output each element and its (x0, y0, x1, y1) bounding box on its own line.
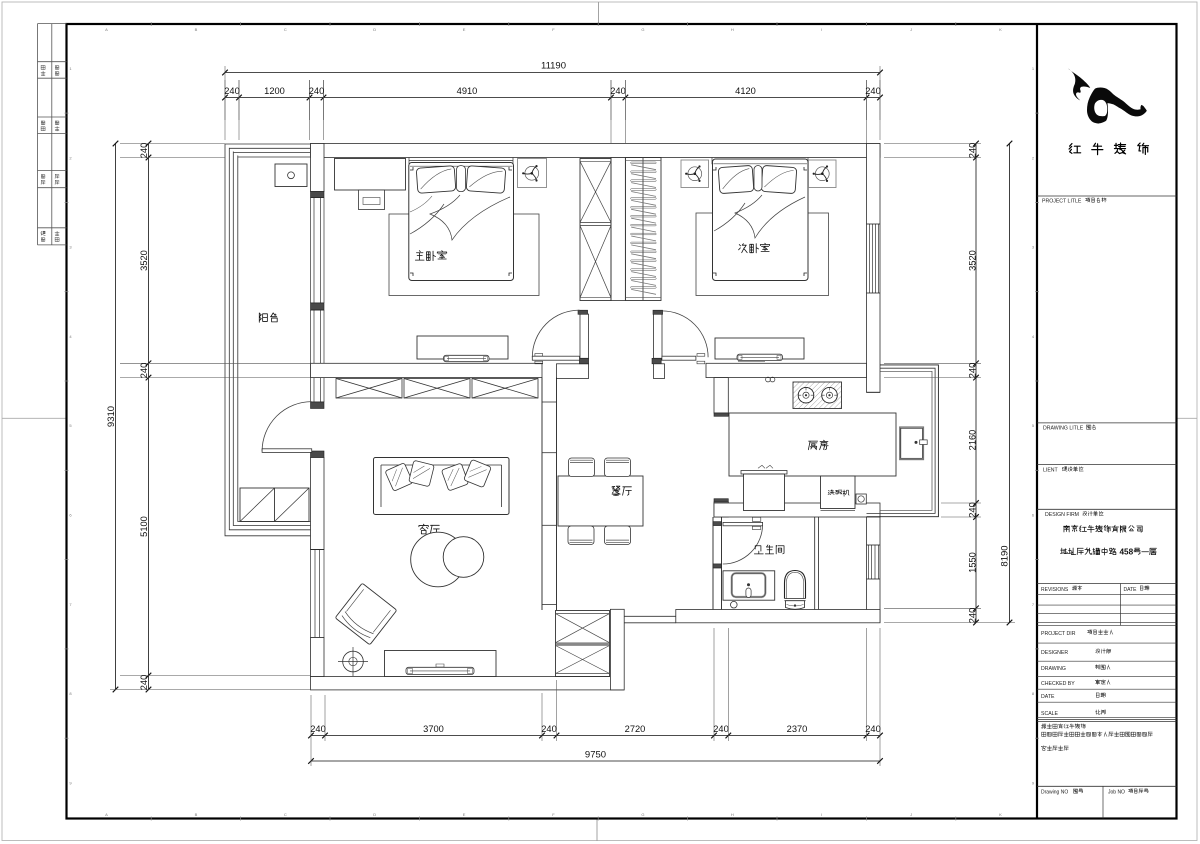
svg-text:2370: 2370 (787, 724, 808, 734)
svg-text:240: 240 (139, 675, 149, 691)
svg-text:K: K (999, 812, 1002, 817)
svg-text:DATE: DATE (1124, 587, 1138, 593)
svg-text:5100: 5100 (139, 516, 149, 537)
svg-text:G: G (641, 812, 644, 817)
svg-text:240: 240 (713, 724, 729, 734)
svg-text:Drawing NO: Drawing NO (1041, 790, 1068, 796)
svg-text:240: 240 (968, 502, 978, 518)
svg-text:G: G (641, 27, 644, 32)
svg-text:3520: 3520 (139, 250, 149, 271)
svg-text:H: H (731, 812, 734, 817)
svg-text:240: 240 (224, 86, 240, 96)
svg-text:1200: 1200 (264, 86, 285, 96)
svg-text:3520: 3520 (968, 250, 978, 271)
svg-text:SCALE: SCALE (1041, 711, 1059, 717)
svg-text:240: 240 (610, 86, 626, 96)
svg-text:D: D (373, 27, 376, 32)
svg-text:2160: 2160 (968, 430, 978, 451)
svg-text:A: A (105, 812, 108, 817)
svg-text:2720: 2720 (625, 724, 646, 734)
svg-text:DATE: DATE (1041, 694, 1055, 700)
svg-text:DESIGNER: DESIGNER (1041, 650, 1068, 656)
svg-text:DESIGN FIRM: DESIGN FIRM (1045, 512, 1079, 518)
svg-text:C: C (284, 27, 287, 32)
svg-text:C: C (284, 812, 287, 817)
svg-text:LIENT: LIENT (1043, 468, 1059, 474)
svg-text:240: 240 (968, 143, 978, 159)
svg-text:4120: 4120 (735, 86, 756, 96)
svg-text:9750: 9750 (585, 750, 606, 761)
svg-text:I: I (821, 812, 822, 817)
svg-text:PROJECT DIR: PROJECT DIR (1041, 631, 1076, 637)
svg-text:240: 240 (968, 363, 978, 379)
svg-text:458: 458 (1120, 548, 1134, 557)
svg-text:240: 240 (310, 724, 326, 734)
svg-text:J: J (910, 27, 912, 32)
svg-text:I: I (821, 27, 822, 32)
svg-text:240: 240 (541, 724, 557, 734)
svg-text:240: 240 (968, 608, 978, 624)
svg-text:240: 240 (309, 86, 325, 96)
svg-text:DRAWING LITLE: DRAWING LITLE (1043, 426, 1084, 432)
svg-text:K: K (999, 27, 1002, 32)
svg-text:240: 240 (865, 86, 881, 96)
svg-text:A: A (105, 27, 108, 32)
svg-text:240: 240 (865, 724, 881, 734)
svg-text:E: E (463, 27, 466, 32)
svg-text:CHECKED BY: CHECKED BY (1041, 681, 1075, 687)
svg-text:4910: 4910 (457, 86, 478, 96)
svg-text:REVISIONS: REVISIONS (1041, 587, 1069, 593)
svg-text:3700: 3700 (423, 724, 444, 734)
svg-text:B: B (195, 812, 198, 817)
svg-text:D: D (373, 812, 376, 817)
svg-text:J: J (910, 812, 912, 817)
svg-text:11190: 11190 (541, 61, 566, 72)
svg-text:240: 240 (139, 143, 149, 159)
svg-text:Job NO: Job NO (1108, 790, 1125, 796)
svg-text:8190: 8190 (1000, 545, 1011, 566)
svg-text:PROJECT LITLE: PROJECT LITLE (1042, 199, 1082, 205)
svg-text:DRAWING: DRAWING (1041, 666, 1066, 672)
svg-text:9310: 9310 (106, 406, 117, 427)
svg-text:B: B (195, 27, 198, 32)
svg-text:E: E (463, 812, 466, 817)
svg-text:240: 240 (139, 363, 149, 379)
svg-text:1550: 1550 (968, 552, 978, 573)
svg-text:H: H (731, 27, 734, 32)
